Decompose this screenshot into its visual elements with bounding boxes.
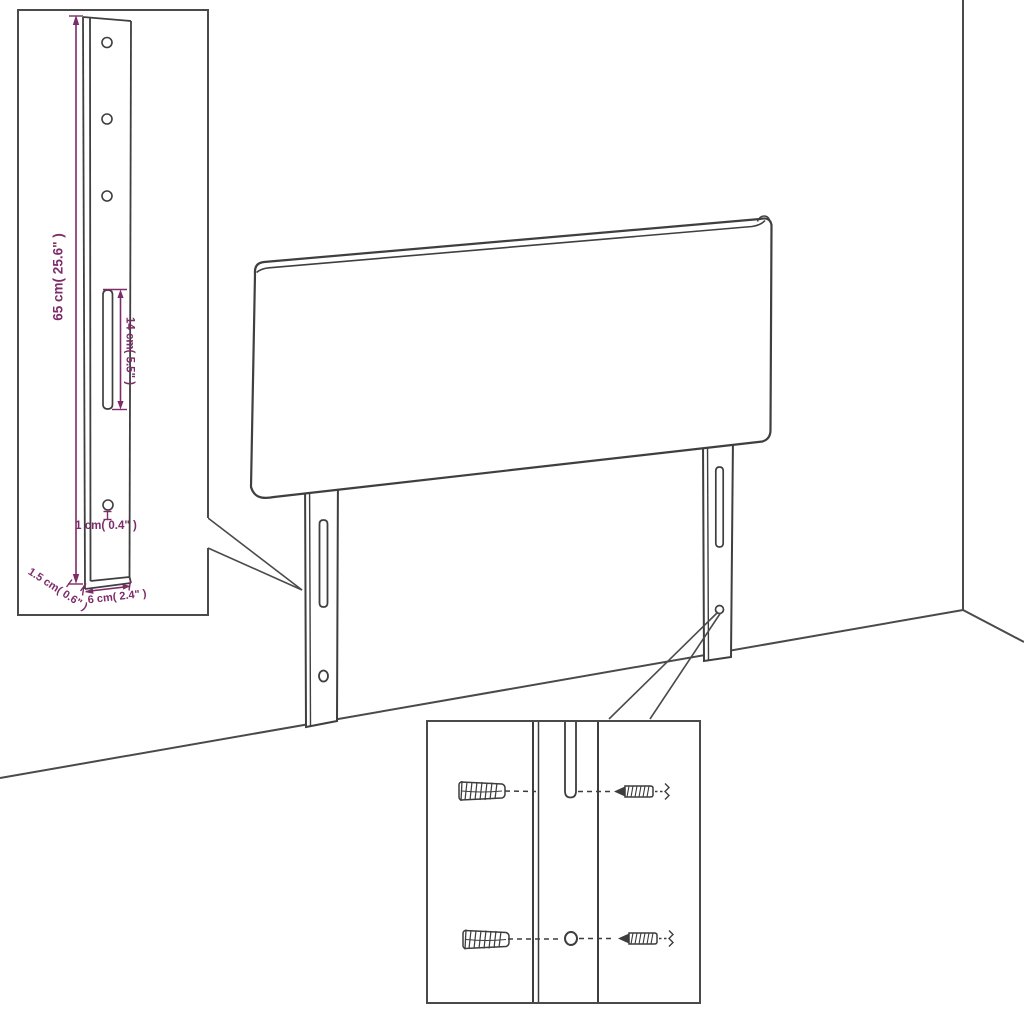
headboard-diagram: 65 cm( 25.6" ) 14 cm( 5.5" ) 1 cm( 0.4" … [0, 0, 1024, 1024]
mounting-inset-callout-right [650, 613, 721, 719]
bracket-detail-inset: 65 cm( 25.6" ) 14 cm( 5.5" ) 1 cm( 0.4" … [18, 10, 208, 615]
mounting-detail-inset [427, 721, 700, 1003]
headboard-panel [251, 216, 772, 498]
callout-lines [208, 518, 721, 719]
slot-dimension-label: 14 cm( 5.5" ) [124, 317, 136, 385]
mounting-inset-callout-left [609, 612, 718, 719]
mounting-inset-border [427, 721, 700, 1003]
left-leg [305, 467, 338, 727]
bracket-drawing [83, 17, 131, 589]
diagram-canvas: 65 cm( 25.6" ) 14 cm( 5.5" ) 1 cm( 0.4" … [0, 0, 1024, 1024]
headboard-panel-face [251, 218, 772, 497]
right-leg [703, 437, 733, 661]
hole-dimension-label: 1 cm( 0.4" ) [75, 520, 137, 532]
right-leg-side-edge [708, 440, 709, 660]
floor-line-right [963, 610, 1024, 642]
height-dimension-label: 65 cm( 25.6" ) [51, 233, 66, 320]
